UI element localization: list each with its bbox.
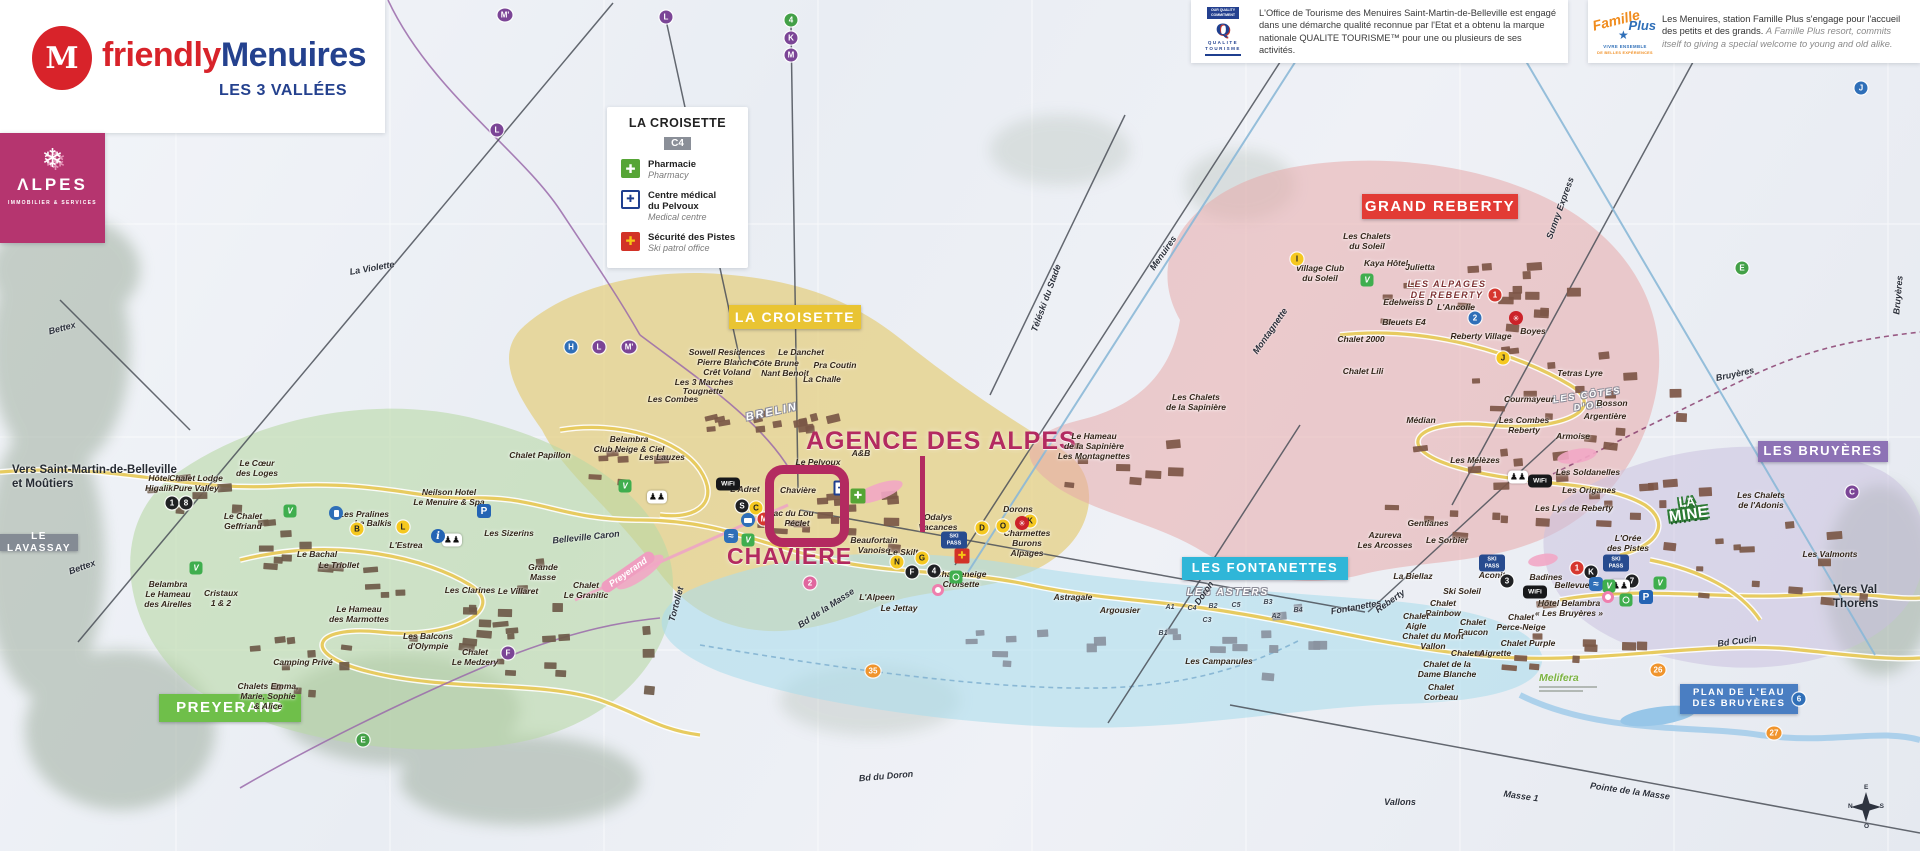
place-label: Chalet Papillon [509,450,570,460]
lift-road-label: Bd de la Masse [796,586,856,630]
place-label: Les Clarines [445,585,496,595]
vshuttle-icon: V [190,562,203,575]
lift-marker-8: 8 [180,497,193,510]
place-label: Chalet 2000 [1337,334,1384,344]
place-label: Les Valmonts [1803,549,1858,559]
lift-marker-27: 27 [1767,727,1782,740]
lift-marker-l: L [660,11,673,24]
parking-icon: P [477,504,491,518]
melifera-subtext-bars [1539,686,1597,692]
place-label: Chalet Le Medzery [452,647,498,667]
place-label: Chalet Lili [1343,366,1384,376]
place-label: Camping Privé [273,657,333,667]
place-label: Le Hameau de la Sapinière Les Montagnett… [1058,431,1130,461]
place-label: Tetras Lyre [1557,368,1603,378]
place-label: Le Sorbier [1426,535,1468,545]
vshuttle-icon: V [1654,577,1667,590]
place-label: La Challe [803,374,841,384]
lift-marker-m': M' [622,341,637,354]
pinkdot-icon [1602,591,1614,603]
skipass-icon: SKI PASS [1603,555,1629,572]
place-label: Le Bachal [297,549,337,559]
place-label: L'Alpeen [859,592,895,602]
place-label: Le Villaret [498,586,538,596]
place-label: B3 [1264,599,1273,607]
lift-marker-g: G [916,552,929,565]
lift-road-label: Montagnette [1251,306,1290,356]
bus-icon [741,513,755,527]
chaviere-label: CHAVIÈRE [727,543,852,570]
lift-marker-j: J [1497,352,1510,365]
place-label: Les Origanes [1562,485,1616,495]
place-label: Gentianes [1407,518,1448,528]
place-label: Côte Brune [753,358,799,368]
pinkdot-icon [932,584,944,596]
lift-marker-b: B [351,523,364,536]
lift-marker-2: 2 [804,577,817,590]
wifi-icon: WiFi [1528,475,1552,488]
compass-top-letter: E [1864,784,1868,791]
zone-label-les-fontanettes: LES FONTANETTES [1182,557,1348,580]
tvdot-icon: ✳ [1509,311,1523,325]
lift-marker-3: 3 [1501,575,1514,588]
lift-marker-m: M [785,49,798,62]
melifera-label: Melifera [1539,672,1597,694]
place-label: Neilson Hotel Le Menuire & Spa [413,487,484,507]
place-label: Ski Soleil [1443,586,1481,596]
place-label: A&B [852,448,870,458]
zone-label-les-bruyeres: LES BRUYÈRES [1758,441,1888,462]
lift-marker-1: 1 [1489,289,1502,302]
place-label: Reberty Village [1450,331,1511,341]
lift-road-label: Masse 1 [1503,789,1539,804]
lock-icon [950,571,963,584]
place-label: B2 [1209,603,1218,611]
place-label: La Biellaz [1393,571,1432,581]
agence-pointer-line [920,456,925,532]
lift-road-label: La Violette [349,259,395,277]
cross-patrol-icon: ✚ [955,549,970,564]
parking-icon: P [1639,590,1653,604]
lift-marker-35: 35 [866,665,881,678]
place-label: Nant Benoit [761,368,809,378]
place-label: Le Danchet [778,347,824,357]
melifera-text: Melifera [1539,672,1579,684]
lift-road-label: Menuires [1148,234,1179,272]
lock-icon [1620,594,1633,607]
people-icon: ♟♟ [647,491,667,504]
lift-marker-6: 6 [1793,693,1806,706]
pool-icon: ≈ [1589,577,1603,591]
compass-left-letter: N [1848,803,1853,810]
place-label: Chalet Aigrette [1451,648,1511,658]
lift-road-label: Bruyères [1715,365,1755,383]
place-label: Grande Masse [528,562,558,582]
place-label: B4 [1294,607,1303,615]
place-label: Dorons [1003,504,1033,514]
place-label: A1 [1166,604,1175,612]
place-label: Le Skilt [888,547,918,557]
lift-marker-e: E [357,734,370,747]
place-label: L'Orée des Pistes [1607,533,1649,553]
place-label: Les Campanules [1185,656,1253,666]
place-label: Les Balcons d'Olympie [403,631,453,651]
lift-marker-4: 4 [928,565,941,578]
lift-marker-h: H [565,341,578,354]
lift-marker-s: S [736,500,749,513]
skipass-icon: SKI PASS [1479,555,1505,572]
place-label: Le Cœur des Loges [236,458,278,478]
place-label: Les Lys de Reberty [1535,503,1613,513]
place-label: Astragale [1054,592,1093,602]
place-label: Cristaux 1 & 2 [204,588,238,608]
lift-marker-1: 1 [166,497,179,510]
place-label: Le Hameau des Marmottes [329,604,389,624]
lift-road-label: Preyerand [599,549,657,594]
place-label: Les Chalets du Soleil [1343,231,1391,251]
vshuttle-icon: V [619,480,632,493]
place-label: Les Sizerins [484,528,534,538]
place-label: Village Club du Soleil [1296,263,1344,283]
place-label: Médian [1406,415,1435,425]
place-label: Le Triollet [319,560,359,570]
place-label: Argousier [1100,605,1140,615]
lift-marker-l: L [397,521,410,534]
compass-bottom-letter: O [1864,823,1869,830]
skipass-icon: SKI PASS [941,532,967,549]
place-label: Chalet Perce-Neige [1496,612,1545,632]
lift-road-label: Bd du Doron [858,769,913,784]
lift-marker-d: D [976,522,989,535]
info-icon: i [431,529,445,543]
fuel-icon [329,506,343,520]
place-label: Chalet Aigle [1403,611,1429,631]
place-label: B1 [1159,630,1168,638]
lift-marker-26: 26 [1651,664,1666,677]
compass-rose: E S O N [1845,786,1887,828]
place-label: Bosson [1596,398,1627,408]
place-label: Chalet Rainbow [1425,598,1460,618]
tvdot-icon: ✳ [1015,516,1029,530]
lift-road-label: Bd Cucin [1717,633,1758,648]
lift-marker-e: E [1736,262,1749,275]
place-label: Chalet Lodge Pure Valley [169,473,223,493]
resort-map: LA CROISETTEGRAND REBERTYLES BRUYÈRESLES… [0,0,1920,851]
place-label: Les Chalets de l'Adonis [1737,490,1785,510]
lift-marker-4: 4 [785,14,798,27]
wifi-icon: WiFi [716,478,740,491]
area-name-label: BRELIN [745,401,800,425]
place-label: Boyes [1520,326,1546,336]
cross-ph-icon: ✚ [851,489,866,504]
lift-marker-c: C [1846,486,1859,499]
compass-right-letter: S [1880,803,1884,810]
zone-label-grand-reberty: GRAND REBERTY [1362,194,1518,219]
place-label: Chalet de la Dame Blanche [1418,659,1477,679]
people-icon: ♟♟ [442,534,462,547]
place-label: C4 [1188,605,1197,613]
place-label: Belambra Le Hameau des Airelles [144,579,191,609]
place-label: Chalet Purple [1501,638,1556,648]
lift-marker-l: L [491,124,504,137]
vshuttle-icon: V [1361,274,1374,287]
place-label: Les Mélèzes [1450,455,1500,465]
wifi-icon: WiFi [1523,586,1547,599]
place-label: Kaya Hôtel [1364,258,1408,268]
agence-des-alpes-label: AGENCE DES ALPES [806,427,1077,456]
map-annotations: LA CROISETTEGRAND REBERTYLES BRUYÈRESLES… [0,0,1920,851]
lift-road-label: Téléski du Stade [1029,263,1063,333]
zone-label-la-croisette: LA CROISETTE [729,305,861,329]
place-label: Badines [1529,572,1562,582]
lift-marker-f: F [502,647,515,660]
lift-road-label: Belleville Caron [552,528,620,545]
zone-label-le-lavassay: LE LAVASSAY [0,534,78,551]
lift-road-label: Vallons [1384,797,1416,807]
lift-marker-i: I [1291,253,1304,266]
place-label: Edelweiss D [1383,297,1433,307]
vshuttle-icon: V [284,505,297,518]
direction-label: Vers Val Thorens [1833,583,1920,612]
place-label: L'Estrea [389,540,422,550]
lift-road-label: Bettex [67,558,96,577]
place-label: Chalets Emma, Marie, Sophie & Alice [238,681,299,711]
agence-highlight-box [765,465,849,547]
place-label: Pra Coutin [814,360,857,370]
place-label: Le Jettay [881,603,918,613]
lift-marker-m': M' [498,9,513,22]
place-label: C5 [1232,602,1241,610]
direction-label: Vers Saint-Martin-de-Belleville et Moûti… [12,463,177,492]
pool-icon: ≈ [724,529,738,543]
place-label: Chalet Corbeau [1424,682,1458,702]
lift-marker-2: 2 [1469,312,1482,325]
place-label: Azureva Les Arcosses [1358,530,1413,550]
place-label: Armoise [1556,431,1590,441]
place-label: Julietta [1405,262,1435,272]
lift-road-label: Bettex [47,320,76,337]
place-label: Les Chalets de la Sapinière [1166,392,1226,412]
place-label: Courmayeur [1504,394,1554,404]
place-label: Charmettes Burons Alpages [1004,528,1051,558]
place-label: A2 [1272,613,1281,621]
lift-road-label: Tortollet [667,585,686,622]
place-label: Les Combes Reberty [1499,415,1550,435]
vshuttle-icon: V [742,534,755,547]
people-icon: ♟♟ [1508,471,1528,484]
lift-road-label: Pointe de la Masse [1589,780,1670,801]
lift-marker-k: K [785,32,798,45]
place-label: C3 [1203,617,1212,625]
zone-label-plan-de-l-eau: PLAN DE L'EAU DES BRUYÈRES [1680,684,1798,714]
place-label: Les Lauzes [639,452,685,462]
lift-marker-j: J [1855,82,1868,95]
place-label: L'Ancolie [1437,302,1475,312]
lift-road-label: Sunny Express [1544,176,1576,241]
lift-marker-1: 1 [1571,562,1584,575]
place-label: Le Chalet Geffriand [224,511,262,531]
place-label: Bleuets E4 [1382,317,1425,327]
lift-marker-n: N [891,556,904,569]
place-label: Les Combes [648,394,699,404]
lift-marker-f: F [906,566,919,579]
place-label: Argentière [1584,411,1627,421]
lift-marker-o: O [997,520,1010,533]
place-label: Les Soldanelles [1556,467,1620,477]
lift-marker-l: L [593,341,606,354]
lift-road-label: Bruyères [1891,275,1904,315]
